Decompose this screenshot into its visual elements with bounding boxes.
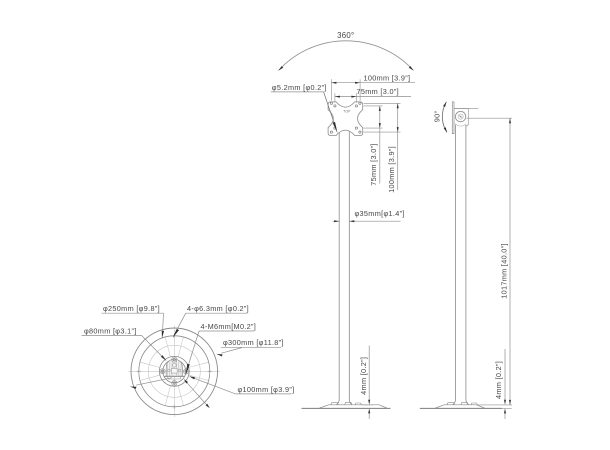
svg-text:φ35mm[φ1.4”]: φ35mm[φ1.4”]	[355, 209, 405, 218]
svg-text:φ300mm [φ11.8”]: φ300mm [φ11.8”]	[223, 338, 284, 347]
svg-text:4-φ6.3mm [φ0.2”]: 4-φ6.3mm [φ0.2”]	[187, 304, 249, 313]
svg-text:100mm [3.9”]: 100mm [3.9”]	[387, 146, 396, 193]
svg-text:TOP: TOP	[343, 109, 350, 113]
svg-text:φ100mm [φ3.9”]: φ100mm [φ3.9”]	[238, 385, 295, 394]
svg-text:φ250mm [φ9.8”]: φ250mm [φ9.8”]	[103, 304, 160, 313]
svg-text:φ80mm [φ3.1”]: φ80mm [φ3.1”]	[84, 326, 137, 335]
svg-text:4mm [0.2”]: 4mm [0.2”]	[359, 357, 368, 395]
svg-text:100mm [3.9”]: 100mm [3.9”]	[364, 74, 411, 83]
svg-text:90°: 90°	[432, 110, 441, 122]
svg-text:φ5.2mm [φ0.2”]: φ5.2mm [φ0.2”]	[272, 83, 327, 92]
svg-text:75mm [3.0”]: 75mm [3.0”]	[357, 87, 399, 96]
svg-text:4mm [0.2”]: 4mm [0.2”]	[494, 361, 503, 399]
svg-text:4-M6mm[M0.2”]: 4-M6mm[M0.2”]	[201, 322, 257, 331]
svg-text:75mm [3.0”]: 75mm [3.0”]	[369, 143, 378, 185]
svg-text:1017mm [40.0”]: 1017mm [40.0”]	[499, 243, 508, 299]
svg-text:360°: 360°	[337, 31, 354, 40]
